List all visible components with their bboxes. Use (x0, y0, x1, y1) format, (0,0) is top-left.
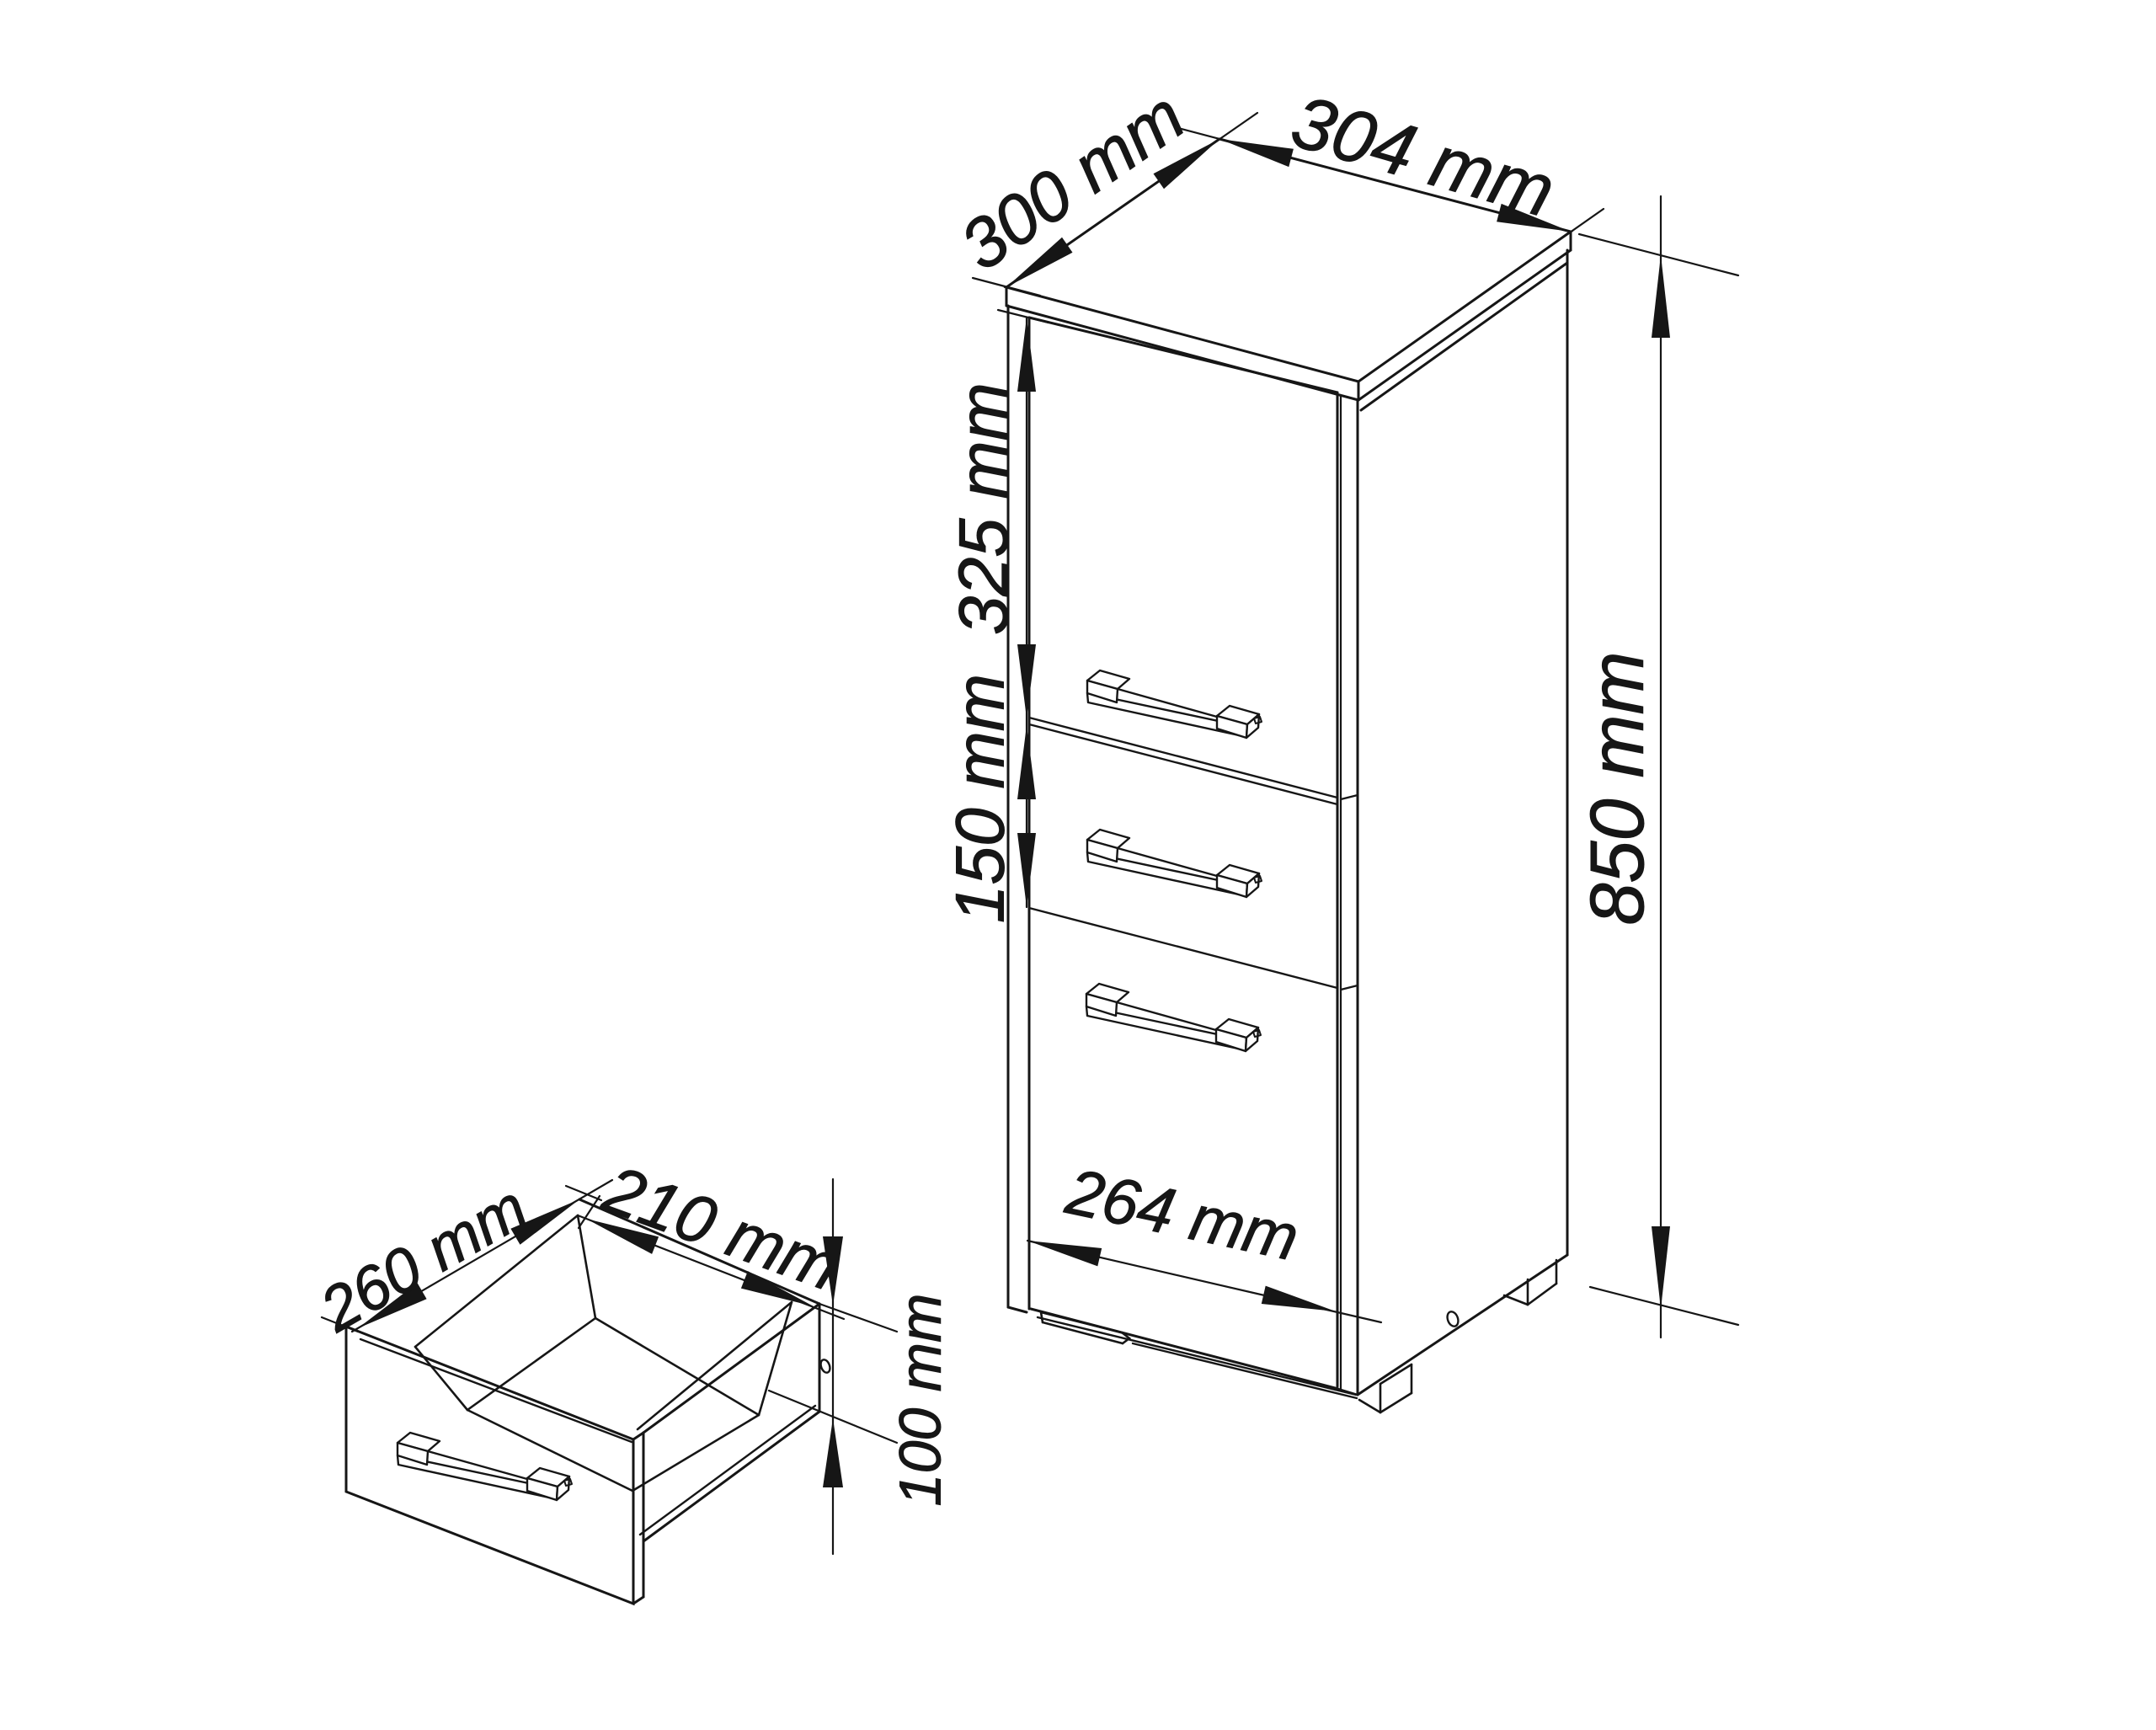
svg-text:850 mm: 850 mm (1576, 651, 1660, 925)
svg-text:150 mm: 150 mm (942, 674, 1019, 923)
svg-text:325 mm: 325 mm (944, 382, 1022, 635)
svg-text:100 mm: 100 mm (887, 1294, 953, 1507)
